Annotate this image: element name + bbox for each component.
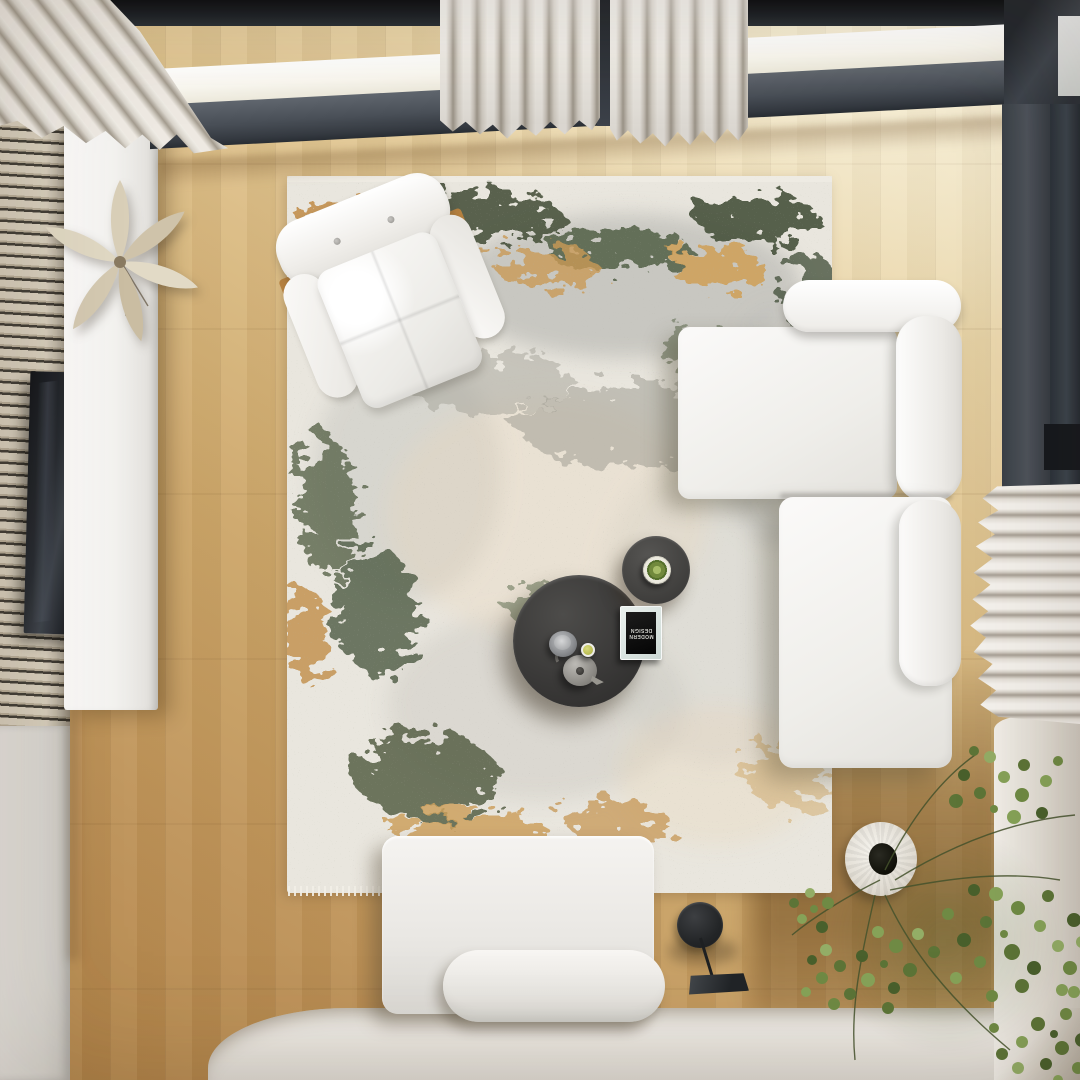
succulent-plant [642,555,672,585]
sofa-armrest-upper [896,316,962,502]
book-cover: MODERN DESIGN [626,612,656,654]
wall-bottom-left [0,726,70,1080]
book-title: MODERN DESIGN [629,627,654,639]
teapot-lid-knob [576,667,584,675]
bottom-sofa-bolster [443,950,665,1022]
plant-foliage-cluster [1050,1030,1058,1038]
tuft-button [333,237,342,246]
plant-stems [780,730,1080,1080]
plant-foliage-sprig [810,905,818,913]
small-cup [580,642,596,658]
right-window-mullion [1044,424,1080,470]
curtain-panel-right [610,0,748,148]
tea-bowl-inner [554,635,571,650]
sofa-armrest-lower [899,500,961,686]
sofa-chaise-cushion [678,327,897,499]
plant-foliage-cluster [880,960,888,968]
plant-foliage-cluster [1000,930,1008,938]
tea-bowl [549,631,577,657]
tv-glare [32,381,58,623]
small-cup-contents [583,645,593,655]
pampas-decor [40,178,200,348]
teapot [563,655,597,686]
window-corner-glass [1058,16,1080,96]
living-room-top-view: MODERN DESIGN [0,0,1080,1080]
tuft-button [386,215,395,224]
design-book: MODERN DESIGN [620,606,662,660]
curtain-panel-left [440,0,600,140]
plant-foliage-cluster [990,805,998,813]
